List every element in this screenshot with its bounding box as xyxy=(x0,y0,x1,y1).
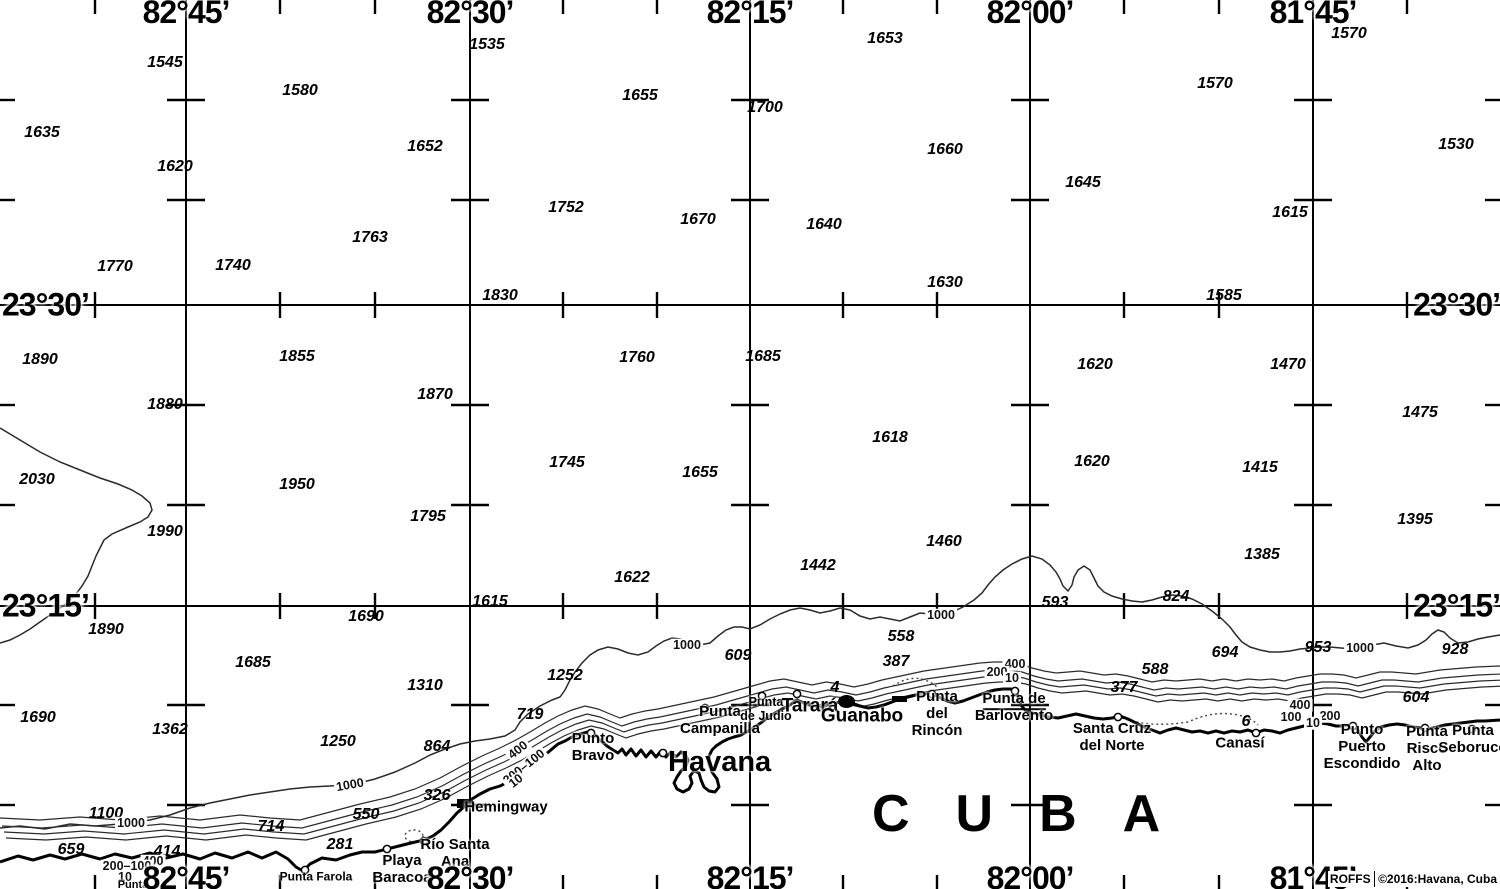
depth-sounding: 1950 xyxy=(279,476,315,494)
place-label-line: Río Santa xyxy=(420,837,489,854)
depth-sounding: 1250 xyxy=(320,733,356,751)
depth-sounding: 659 xyxy=(58,841,85,859)
place-label-line: Punta xyxy=(912,689,963,706)
depth-sounding: 6 xyxy=(1242,713,1251,731)
place-label-line: Punto xyxy=(572,731,615,748)
place-label-punta-seboruco: PuntaSeboruco xyxy=(1438,723,1500,757)
place-label-line: Bravo xyxy=(572,748,615,765)
depth-sounding: 1622 xyxy=(614,569,650,587)
depth-sounding: 1752 xyxy=(548,199,584,217)
havana-marker xyxy=(659,749,666,756)
nautical-chart-havana-cuba: 1545153516531570158016551700157016351652… xyxy=(0,0,1500,889)
contour-depth-label: 1000 xyxy=(925,609,957,622)
depth-sounding: 1310 xyxy=(407,677,443,695)
depth-sounding: 1830 xyxy=(482,287,518,305)
place-label-line: Puerto xyxy=(1324,739,1401,756)
depth-sounding: 326 xyxy=(424,787,451,805)
place-label-canas-: Canasí xyxy=(1215,736,1264,753)
latitude-label-left: 23°30’ xyxy=(2,287,89,324)
settlement-fill-marker xyxy=(892,696,907,702)
shoal-contour-dotted xyxy=(893,678,938,688)
depth-sounding: 1770 xyxy=(97,258,133,276)
longitude-label-bottom: 82°45’ xyxy=(143,860,230,889)
longitude-label-top: 81°45’ xyxy=(1270,0,1357,31)
place-label-line: Guanabo xyxy=(821,705,903,726)
chart-credit: ROFFS ©2016:Havana, Cuba xyxy=(1328,871,1497,887)
depth-sounding: 1615 xyxy=(472,593,508,611)
depth-sounding: 1415 xyxy=(1242,459,1278,477)
depth-sounding: 1545 xyxy=(147,54,183,72)
depth-sounding: 1475 xyxy=(1402,404,1438,422)
depth-sounding: 550 xyxy=(353,806,380,824)
depth-sounding: 1880 xyxy=(147,396,183,414)
place-label-line: Santa Cruz xyxy=(1073,721,1151,738)
place-label-punta-farola: Punta Farola xyxy=(280,870,353,883)
place-label-santa-cruz-del-norte: Santa Cruzdel Norte xyxy=(1073,721,1151,755)
depth-sounding: 1655 xyxy=(682,464,718,482)
contour-depth-label: 100 xyxy=(1279,711,1304,724)
depth-sounding: 558 xyxy=(888,628,915,646)
longitude-label-bottom: 82°15’ xyxy=(707,860,794,889)
depth-sounding: 1470 xyxy=(1270,356,1306,374)
depth-sounding: 1700 xyxy=(747,99,783,117)
depth-sounding: 377 xyxy=(1111,679,1138,697)
depth-sounding: 1442 xyxy=(800,557,836,575)
depth-sounding: 1620 xyxy=(1074,453,1110,471)
depth-sounding: 1763 xyxy=(352,229,388,247)
depth-sounding: 593 xyxy=(1042,594,1069,612)
country-label-cuba: CUBA xyxy=(872,788,1206,840)
place-label-line: Barlovento xyxy=(975,708,1053,725)
depth-sounding: 1570 xyxy=(1197,75,1233,93)
contour-depth-label: 1000 xyxy=(671,639,703,652)
depth-sounding: 604 xyxy=(1403,689,1430,707)
place-label-line: Rincón xyxy=(912,722,963,739)
depth-sounding: 281 xyxy=(327,836,354,854)
depth-sounding: 1655 xyxy=(622,87,658,105)
place-label-line: Punta de xyxy=(975,691,1053,708)
longitude-label-bottom: 82°00’ xyxy=(987,860,1074,889)
credit-copyright: ©2016:Havana, Cuba xyxy=(1378,872,1497,886)
depth-sounding: 1685 xyxy=(235,654,271,672)
place-label-line: Punta xyxy=(1438,723,1500,740)
depth-sounding: 1585 xyxy=(1206,287,1242,305)
place-label-line: del xyxy=(912,706,963,723)
depth-sounding: 1395 xyxy=(1397,511,1433,529)
depth-sounding: 1740 xyxy=(215,257,251,275)
depth-sounding: 824 xyxy=(1163,588,1190,606)
depth-sounding: 609 xyxy=(725,647,752,665)
depth-sounding: 1690 xyxy=(20,709,56,727)
place-label-line: Alto xyxy=(1406,757,1448,774)
depth-sounding: 1252 xyxy=(547,667,583,685)
longitude-label-bottom: 82°30’ xyxy=(427,860,514,889)
latitude-label-right: 23°30’ xyxy=(1413,287,1500,324)
longitude-label-top: 82°15’ xyxy=(707,0,794,31)
depth-sounding: 1618 xyxy=(872,429,908,447)
place-label-punta-de-barlovento: Punta deBarlovento xyxy=(975,691,1053,725)
place-label-line: Escondido xyxy=(1324,755,1401,772)
depth-sounding: 953 xyxy=(1305,639,1332,657)
depth-sounding: 1690 xyxy=(348,608,384,626)
place-label-line: Hemingway xyxy=(464,800,547,817)
depth-sounding: 1990 xyxy=(147,523,183,541)
longitude-label-top: 82°30’ xyxy=(427,0,514,31)
depth-sounding: 1460 xyxy=(926,533,962,551)
place-label-punto-bravo: PuntoBravo xyxy=(572,731,615,765)
contour-depth-label: 1000 xyxy=(1344,642,1376,655)
depth-sounding: 1653 xyxy=(867,30,903,48)
longitude-label-top: 82°00’ xyxy=(987,0,1074,31)
place-label-line: Campanilla xyxy=(680,721,760,738)
depth-sounding: 1615 xyxy=(1272,204,1308,222)
depth-sounding: 864 xyxy=(424,738,451,756)
depth-sounding: 1670 xyxy=(680,211,716,229)
place-label-line: Canasí xyxy=(1215,736,1264,753)
place-label-line: Punto xyxy=(1324,722,1401,739)
depth-sounding: 719 xyxy=(517,706,544,724)
depth-sounding: 928 xyxy=(1442,641,1469,659)
depth-sounding: 4 xyxy=(831,679,840,697)
contour-depth-label: 10 xyxy=(1304,717,1322,730)
depth-sounding: 1645 xyxy=(1065,174,1101,192)
depth-sounding: 1530 xyxy=(1438,136,1474,154)
depth-sounding: 1630 xyxy=(927,274,963,292)
depth-sounding: 2030 xyxy=(19,471,55,489)
contour-depth-label: 10 xyxy=(1003,672,1021,685)
depth-sounding: 1890 xyxy=(88,621,124,639)
contour-depth-label: 1000 xyxy=(115,817,147,830)
depth-sounding: 1870 xyxy=(417,386,453,404)
depth-sounding: 588 xyxy=(1142,661,1169,679)
longitude-label-top: 82°45’ xyxy=(143,0,230,31)
place-label-line: Punta Farola xyxy=(280,870,353,883)
depth-sounding: 387 xyxy=(883,653,910,671)
depth-sounding: 1620 xyxy=(1077,356,1113,374)
place-label-guanabo: Guanabo xyxy=(821,705,903,726)
depth-sounding: 1640 xyxy=(806,216,842,234)
depth-sounding: 1620 xyxy=(157,158,193,176)
depth-sounding: 694 xyxy=(1212,644,1239,662)
depth-sounding: 1745 xyxy=(549,454,585,472)
latitude-label-right: 23°15’ xyxy=(1413,588,1500,625)
depth-sounding: 1795 xyxy=(410,508,446,526)
credit-divider xyxy=(1374,871,1376,887)
place-label-line: del Norte xyxy=(1073,738,1151,755)
credit-agency: ROFFS xyxy=(1330,872,1371,886)
depth-sounding: 1890 xyxy=(22,351,58,369)
depth-sounding: 1635 xyxy=(24,124,60,142)
depth-sounding: 1535 xyxy=(469,36,505,54)
depth-sounding: 1760 xyxy=(619,349,655,367)
city-label-havana: Havana xyxy=(668,746,771,779)
place-label-hemingway: Hemingway xyxy=(464,800,547,817)
place-label-punta-del-rinc-n: PuntadelRincón xyxy=(912,689,963,739)
depth-sounding: 1652 xyxy=(407,138,443,156)
depth-sounding: 1685 xyxy=(745,348,781,366)
depth-sounding: 714 xyxy=(258,818,285,836)
place-label-punto-puerto-escondido: PuntoPuertoEscondido xyxy=(1324,722,1401,772)
depth-sounding: 1855 xyxy=(279,348,315,366)
place-label-line: Baracoa xyxy=(372,870,431,887)
depth-sounding: 1385 xyxy=(1244,546,1280,564)
depth-sounding: 1580 xyxy=(282,82,318,100)
depth-sounding: 1362 xyxy=(152,721,188,739)
depth-sounding: 1660 xyxy=(927,141,963,159)
latitude-label-left: 23°15’ xyxy=(2,588,89,625)
place-label-line: Seboruco xyxy=(1438,740,1500,757)
